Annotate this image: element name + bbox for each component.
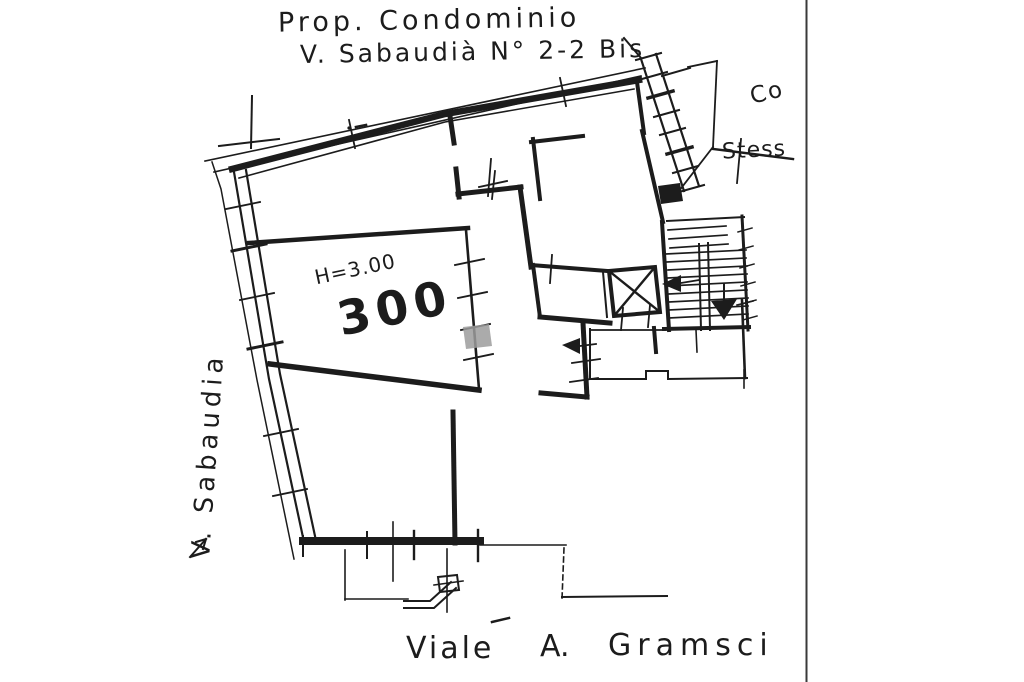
bottom-wall-details bbox=[303, 522, 667, 600]
plan-title-line2: V. Sabaudià N° 2-2 Bis bbox=[300, 34, 646, 69]
elevator-shaft bbox=[603, 267, 660, 330]
stray-pen-mark bbox=[492, 618, 509, 622]
floor-plan-drawing bbox=[0, 0, 1024, 682]
internal-staircase bbox=[654, 216, 757, 352]
window-ticks-left-wall bbox=[226, 202, 307, 496]
pencil-mark bbox=[463, 324, 492, 349]
interior-walls bbox=[450, 82, 663, 543]
plan-title-line1: Prop. Condominio bbox=[278, 2, 581, 38]
street-label-a: A. bbox=[540, 629, 570, 664]
scanned-plan-page: Prop. Condominio V. Sabaudià N° 2-2 Bis … bbox=[0, 0, 1024, 682]
street-label-gramsci: Gramsci bbox=[608, 628, 774, 663]
stair-treads bbox=[666, 226, 748, 318]
street-label-viale: Viale bbox=[406, 631, 494, 666]
adjacent-property-label-line2: Stess bbox=[721, 136, 786, 164]
